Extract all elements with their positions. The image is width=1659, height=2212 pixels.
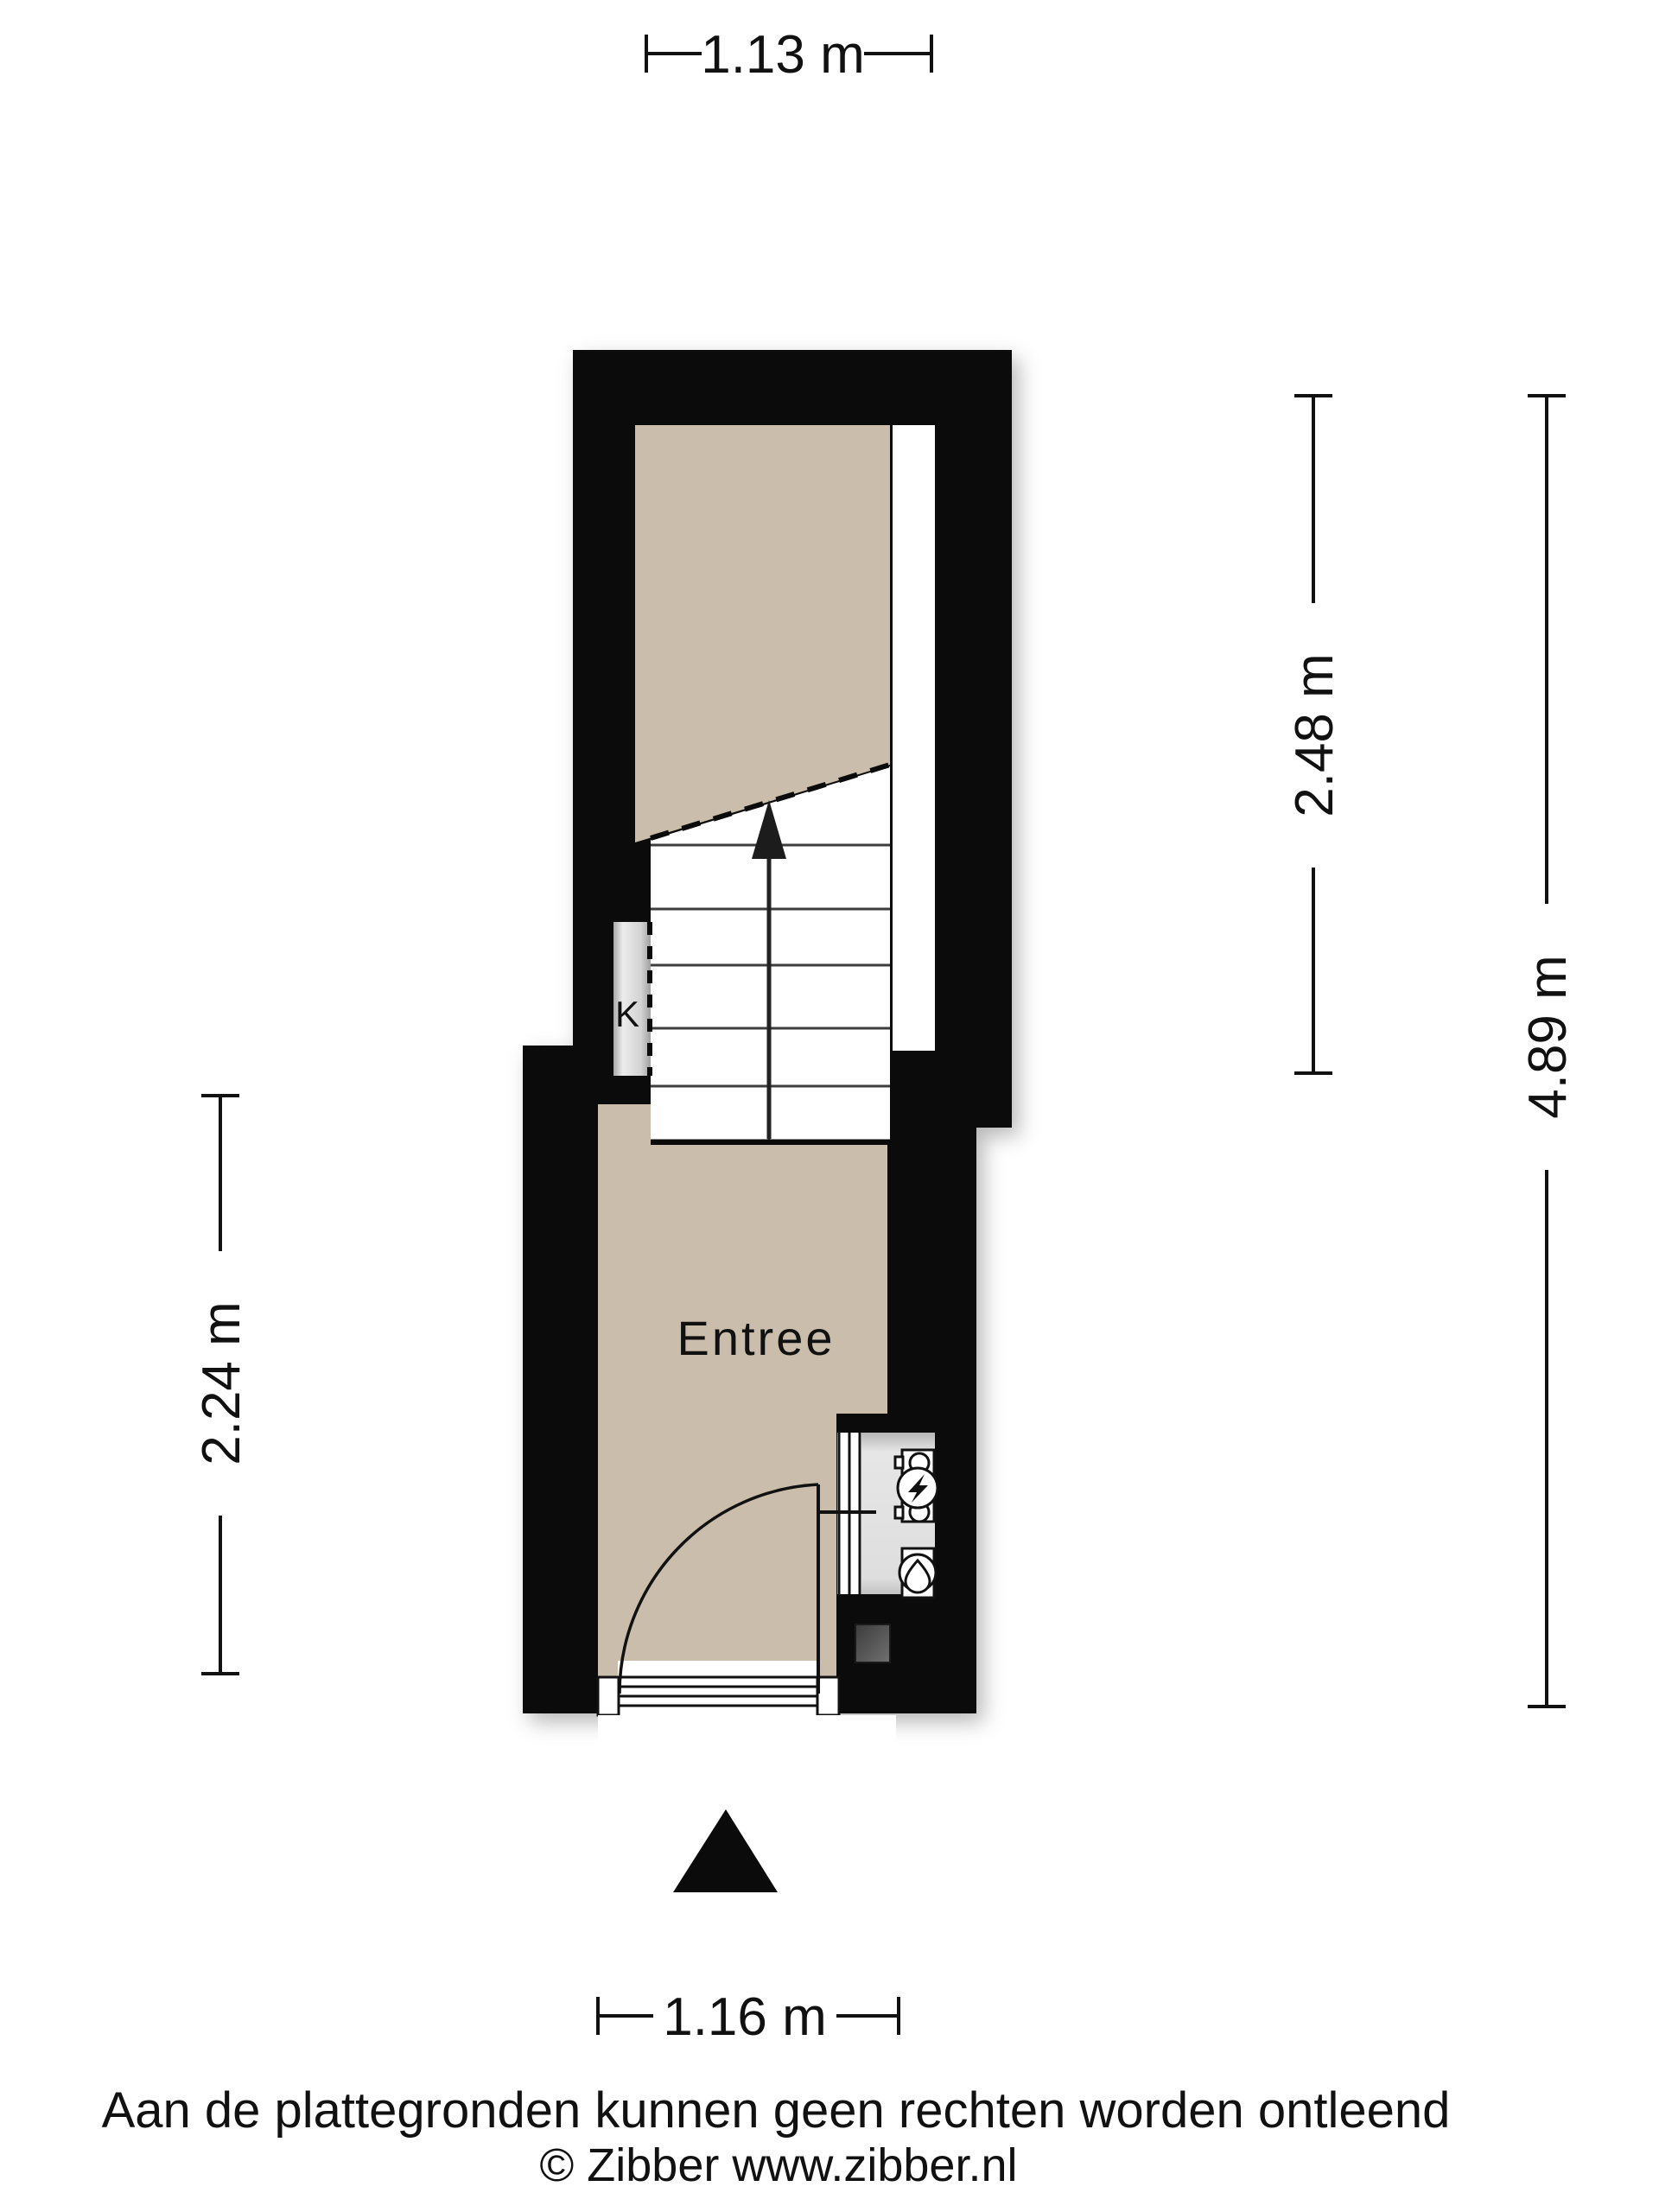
dimension-left-label: 2.24 m <box>192 1301 251 1465</box>
footer-copyright: © Zibber www.zibber.nl <box>540 2139 1018 2191</box>
electricity-meter-icon <box>895 1450 938 1522</box>
room-label-entree: Entree <box>677 1311 836 1365</box>
doormat <box>855 1624 890 1662</box>
building: K Entree <box>523 350 1012 1754</box>
closet-label: K <box>615 994 639 1034</box>
dimension-right-total-label: 4.89 m <box>1518 955 1578 1119</box>
stair-void-strip <box>893 425 935 1051</box>
floorplan-canvas: K Entree <box>0 0 1659 2212</box>
dimension-top-label: 1.13 m <box>701 25 865 85</box>
dimension-right-upper-label: 2.48 m <box>1285 653 1344 817</box>
door-jamb-right <box>817 1677 839 1715</box>
footer-disclaimer: Aan de plattegronden kunnen geen rechten… <box>102 2082 1451 2139</box>
closet: K <box>613 922 651 1076</box>
floorplan-page: K Entree <box>0 0 1659 2212</box>
water-meter-icon <box>899 1548 936 1598</box>
dimension-bottom-label: 1.16 m <box>663 1987 827 2047</box>
exterior-apron <box>598 1715 896 1754</box>
door-jamb-left <box>598 1677 619 1715</box>
